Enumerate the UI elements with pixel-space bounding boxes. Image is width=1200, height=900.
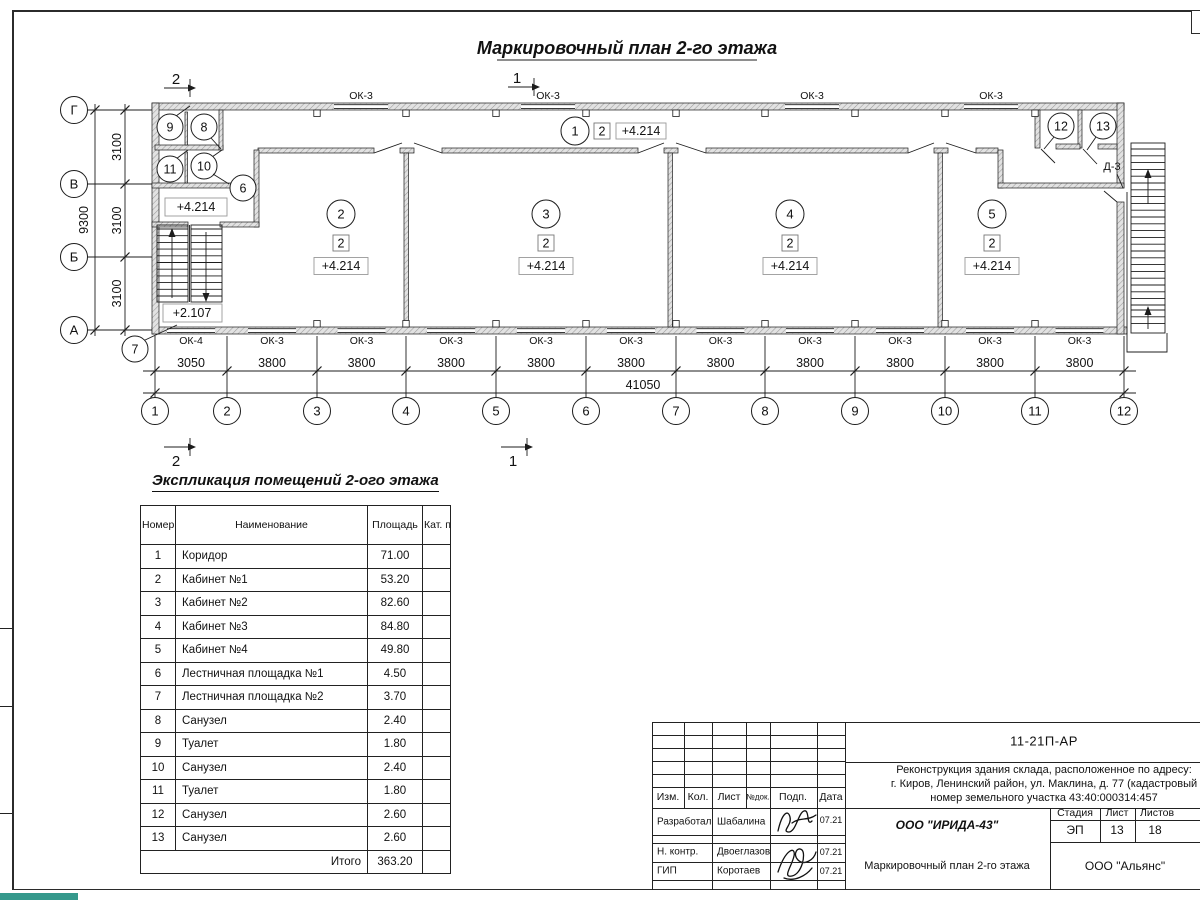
window-label: ОК-3 <box>529 335 553 347</box>
plan-title: Маркировочный план 2-го этажа <box>477 38 777 58</box>
room-number-cell: 10 <box>141 756 176 780</box>
svg-text:2: 2 <box>172 453 180 470</box>
pilaster <box>673 321 679 328</box>
room-area-cell: 49.80 <box>368 639 423 663</box>
window-label: ОК-3 <box>260 335 284 347</box>
title-block-line <box>652 787 845 788</box>
room-category-cell <box>423 662 451 686</box>
elevation-value: +4.214 <box>177 200 216 214</box>
room-name-cell: Лестничная площадка №1 <box>176 662 368 686</box>
elevation-value: +4.214 <box>973 259 1012 273</box>
table-row: 11Туалет1.80 <box>141 780 451 804</box>
room-area-cell: 71.00 <box>368 545 423 569</box>
explication-table: Номер помещ.НаименованиеПлощадьКат. пом.… <box>140 505 451 874</box>
sheet-title: Маркировочный план 2-го этажа <box>864 860 1029 872</box>
title-block-line <box>1100 808 1101 842</box>
dim-label: 3100 <box>110 133 124 161</box>
table-row: 8Санузел2.40 <box>141 709 451 733</box>
room-number-cell: 3 <box>141 592 176 616</box>
elevation-value: +2.107 <box>173 306 212 320</box>
drawing-sheet: Маркировочный план 2-го этажа <box>0 0 1200 900</box>
axis-letter: Б <box>70 250 79 265</box>
dim-label: 3800 <box>617 356 645 370</box>
axis-number: 8 <box>761 404 768 419</box>
stage-value: ЭП <box>1066 823 1083 837</box>
axis-number: 9 <box>851 404 858 419</box>
room-number-cell: 2 <box>141 568 176 592</box>
category-value: 2 <box>787 237 794 251</box>
window-label: ОК-3 <box>978 335 1002 347</box>
dim-label: 3100 <box>110 207 124 235</box>
title-block-line <box>845 722 846 890</box>
elevation-value: +4.214 <box>527 259 566 273</box>
role-label: Разработал <box>657 817 711 828</box>
room-number-cell: 7 <box>141 686 176 710</box>
svg-text:1: 1 <box>509 453 517 470</box>
room-area-cell: 2.60 <box>368 803 423 827</box>
room-category-cell <box>423 615 451 639</box>
title-block-line <box>845 762 1200 763</box>
room-name-cell: Кабинет №1 <box>176 568 368 592</box>
dim-label: 3800 <box>1066 356 1094 370</box>
explication-title: Экспликация помещений 2-ого этажа <box>152 472 439 492</box>
room-number: 8 <box>201 121 208 135</box>
sign-date: 07.21 <box>820 847 843 857</box>
table-header-row: Номер помещ.НаименованиеПлощадьКат. пом. <box>141 506 451 545</box>
axis-number: 11 <box>1028 404 1042 419</box>
window-label: ОК-3 <box>979 90 1003 102</box>
window-label: ОК-3 <box>1068 335 1092 347</box>
room-number-cell: 13 <box>141 827 176 851</box>
room-category-cell <box>423 733 451 757</box>
room-number: 4 <box>786 207 793 222</box>
room-area-cell: 84.80 <box>368 615 423 639</box>
room-number-cell: 4 <box>141 615 176 639</box>
table-row: 5Кабинет №449.80 <box>141 639 451 663</box>
room-name-cell: Кабинет №3 <box>176 615 368 639</box>
rev-header: Изм. <box>657 791 680 803</box>
pilaster <box>1032 321 1038 328</box>
table-row: 12Санузел2.60 <box>141 803 451 827</box>
room-area-cell: 82.60 <box>368 592 423 616</box>
table-row: 4Кабинет №384.80 <box>141 615 451 639</box>
project-description-line: г. Киров, Ленинский район, ул. Маклина, … <box>891 778 1197 790</box>
total-value-cell: 363.20 <box>368 850 423 874</box>
leader-line <box>212 150 222 157</box>
room-number-cell: 1 <box>141 545 176 569</box>
room-area-cell: 53.20 <box>368 568 423 592</box>
title-block-line <box>652 843 845 844</box>
table-row: 7Лестничная площадка №23.70 <box>141 686 451 710</box>
room-name-cell: Санузел <box>176 756 368 780</box>
pilaster <box>942 110 948 117</box>
room-area-cell: 2.60 <box>368 827 423 851</box>
room-category-cell <box>423 639 451 663</box>
axis-number: 10 <box>938 404 952 419</box>
svg-text:1: 1 <box>513 70 521 87</box>
pilaster <box>673 110 679 117</box>
rev-header: Подп. <box>779 791 807 803</box>
sign-date: 07.21 <box>820 815 843 825</box>
axis-number: 5 <box>492 404 499 419</box>
document-number: 11-21П-АР <box>1010 734 1078 749</box>
pilaster <box>762 110 768 117</box>
dim-label: 3800 <box>258 356 286 370</box>
room-number: 6 <box>240 182 247 196</box>
pilaster <box>942 321 948 328</box>
room-number-cell: 8 <box>141 709 176 733</box>
title-block-line <box>652 774 845 775</box>
room-number-cell: 11 <box>141 780 176 804</box>
elevation-value: +4.214 <box>771 259 810 273</box>
dim-label: 3800 <box>527 356 555 370</box>
role-label: Н. контр. <box>657 847 698 858</box>
category-value: 2 <box>989 237 996 251</box>
window-label: ОК-3 <box>439 335 463 347</box>
axis-number: 4 <box>402 404 409 419</box>
room-area-cell: 1.80 <box>368 780 423 804</box>
axis-number: 2 <box>223 404 230 419</box>
axis-number: 12 <box>1117 404 1131 419</box>
elevation-value: +4.214 <box>622 124 661 138</box>
person-name: Шабалина <box>717 817 765 828</box>
room-name-cell: Кабинет №4 <box>176 639 368 663</box>
role-label: ГИП <box>657 866 677 877</box>
room-category-cell <box>423 850 451 874</box>
room-name-cell: Санузел <box>176 827 368 851</box>
sign-date: 07.21 <box>820 866 843 876</box>
room-category-cell <box>423 709 451 733</box>
title-block-line <box>652 761 845 762</box>
room-number: 11 <box>164 163 177 177</box>
window-label: ОК-3 <box>798 335 822 347</box>
room-number: 3 <box>542 207 549 222</box>
window-label: ОК-4 <box>179 335 203 347</box>
room-name-cell: Туалет <box>176 780 368 804</box>
room-category-cell <box>423 545 451 569</box>
title-block-line <box>652 722 1200 723</box>
room-category-cell <box>423 827 451 851</box>
dim-label: 3800 <box>886 356 914 370</box>
window-label: ОК-3 <box>800 90 824 102</box>
room-name-cell: Санузел <box>176 803 368 827</box>
window-label: ОК-3 <box>709 335 733 347</box>
column-header: Площадь <box>368 506 423 545</box>
room-area-cell: 3.70 <box>368 686 423 710</box>
title-block-line <box>1135 808 1136 842</box>
pilaster <box>403 321 409 328</box>
window-label: ОК-3 <box>350 335 374 347</box>
pilaster <box>852 321 858 328</box>
internal-staircase <box>157 225 222 302</box>
room-category-cell <box>423 756 451 780</box>
contractor-company: ООО "Альянс" <box>1085 859 1165 873</box>
room-number-cell: 12 <box>141 803 176 827</box>
dim-label: 3800 <box>437 356 465 370</box>
table-row: 1Коридор71.00 <box>141 545 451 569</box>
axis-letter: Г <box>70 103 77 118</box>
axis-number: 6 <box>582 404 589 419</box>
dim-total-label: 41050 <box>626 378 661 392</box>
leader-line <box>213 174 229 184</box>
title-block-line <box>652 735 845 736</box>
dim-label: 3800 <box>796 356 824 370</box>
pilaster <box>583 321 589 328</box>
room-name-cell: Санузел <box>176 709 368 733</box>
room-number-cell: 9 <box>141 733 176 757</box>
rev-header: Лист <box>718 791 741 803</box>
category-value: 2 <box>599 125 606 139</box>
room-number: 1 <box>571 124 578 139</box>
room-number: 10 <box>197 160 211 174</box>
table-total-row: Итого363.20 <box>141 850 451 874</box>
pilaster <box>852 110 858 117</box>
column-header: Номер помещ. <box>141 506 176 545</box>
room-number: 13 <box>1096 120 1110 134</box>
pilaster <box>1032 110 1038 117</box>
table-row: 13Санузел2.60 <box>141 827 451 851</box>
room-category-cell <box>423 803 451 827</box>
pilaster <box>314 110 320 117</box>
room-name-cell: Коридор <box>176 545 368 569</box>
signature <box>772 805 820 837</box>
external-staircase <box>1127 143 1167 352</box>
person-name: Коротаев <box>717 866 760 877</box>
room-number: 5 <box>988 207 995 222</box>
room-number: 9 <box>167 121 174 135</box>
rev-header: Дата <box>819 791 842 803</box>
svg-text:2: 2 <box>172 71 180 88</box>
table-row: 10Санузел2.40 <box>141 756 451 780</box>
pilaster <box>493 110 499 117</box>
rev-header: №док. <box>746 793 769 802</box>
room-category-cell <box>423 780 451 804</box>
title-block-line <box>652 880 845 881</box>
leader-line <box>1087 137 1096 150</box>
column-header: Наименование <box>176 506 368 545</box>
room-category-cell <box>423 686 451 710</box>
room-category-cell <box>423 592 451 616</box>
rev-header: Кол. <box>688 791 709 803</box>
room-name-cell: Лестничная площадка №2 <box>176 686 368 710</box>
title-block-line <box>652 862 845 863</box>
project-description-line: номер земельного участка 43:40:000314:45… <box>930 792 1158 804</box>
room-name-cell: Туалет <box>176 733 368 757</box>
project-description-line: Реконструкция здания склада, расположенн… <box>896 764 1192 776</box>
room-area-cell: 4.50 <box>368 662 423 686</box>
door-tag: Д-3 <box>1103 161 1120 173</box>
sheet-number: 13 <box>1110 823 1123 837</box>
title-block-line <box>652 808 1200 809</box>
title-block-line <box>652 748 845 749</box>
room-name-cell: Кабинет №2 <box>176 592 368 616</box>
dim-label: 3800 <box>707 356 735 370</box>
table-row: 3Кабинет №282.60 <box>141 592 451 616</box>
room-category-cell <box>423 568 451 592</box>
room-number: 7 <box>132 343 139 357</box>
table-row: 6Лестничная площадка №14.50 <box>141 662 451 686</box>
pilaster <box>493 321 499 328</box>
room-area-cell: 2.40 <box>368 756 423 780</box>
dim-total-label: 9300 <box>77 206 91 234</box>
axis-number: 1 <box>151 404 158 419</box>
category-value: 2 <box>543 237 550 251</box>
elevation-value: +4.214 <box>322 259 361 273</box>
sheets-total: 18 <box>1148 823 1161 837</box>
design-company: ООО "ИРИДА-43" <box>896 818 999 832</box>
axis-letter: А <box>70 323 79 338</box>
dim-label: 3050 <box>177 356 205 370</box>
dim-label: 3100 <box>110 280 124 308</box>
room-number: 12 <box>1054 120 1068 134</box>
title-block-line <box>652 835 845 836</box>
window-label: ОК-3 <box>536 90 560 102</box>
total-label-cell: Итого <box>141 850 368 874</box>
window-label: ОК-3 <box>619 335 643 347</box>
table-row: 9Туалет1.80 <box>141 733 451 757</box>
axis-letter: В <box>70 177 79 192</box>
table-row: 2Кабинет №153.20 <box>141 568 451 592</box>
pilaster <box>583 110 589 117</box>
axis-number: 3 <box>313 404 320 419</box>
pilaster <box>403 110 409 117</box>
pilaster <box>314 321 320 328</box>
category-value: 2 <box>338 237 345 251</box>
window-label: ОК-3 <box>349 90 373 102</box>
room-number: 2 <box>337 207 344 222</box>
title-block-line <box>1050 842 1200 843</box>
title-block-line <box>1050 820 1200 821</box>
column-header: Кат. пом. <box>423 506 451 545</box>
leader-line <box>1044 137 1054 149</box>
dim-label: 3800 <box>976 356 1004 370</box>
room-area-cell: 2.40 <box>368 709 423 733</box>
room-number-cell: 6 <box>141 662 176 686</box>
person-name: Двоеглазов <box>717 847 770 858</box>
dim-label: 3800 <box>348 356 376 370</box>
room-number-cell: 5 <box>141 639 176 663</box>
axis-number: 7 <box>672 404 679 419</box>
window-label: ОК-3 <box>888 335 912 347</box>
room-area-cell: 1.80 <box>368 733 423 757</box>
pilaster <box>762 321 768 328</box>
